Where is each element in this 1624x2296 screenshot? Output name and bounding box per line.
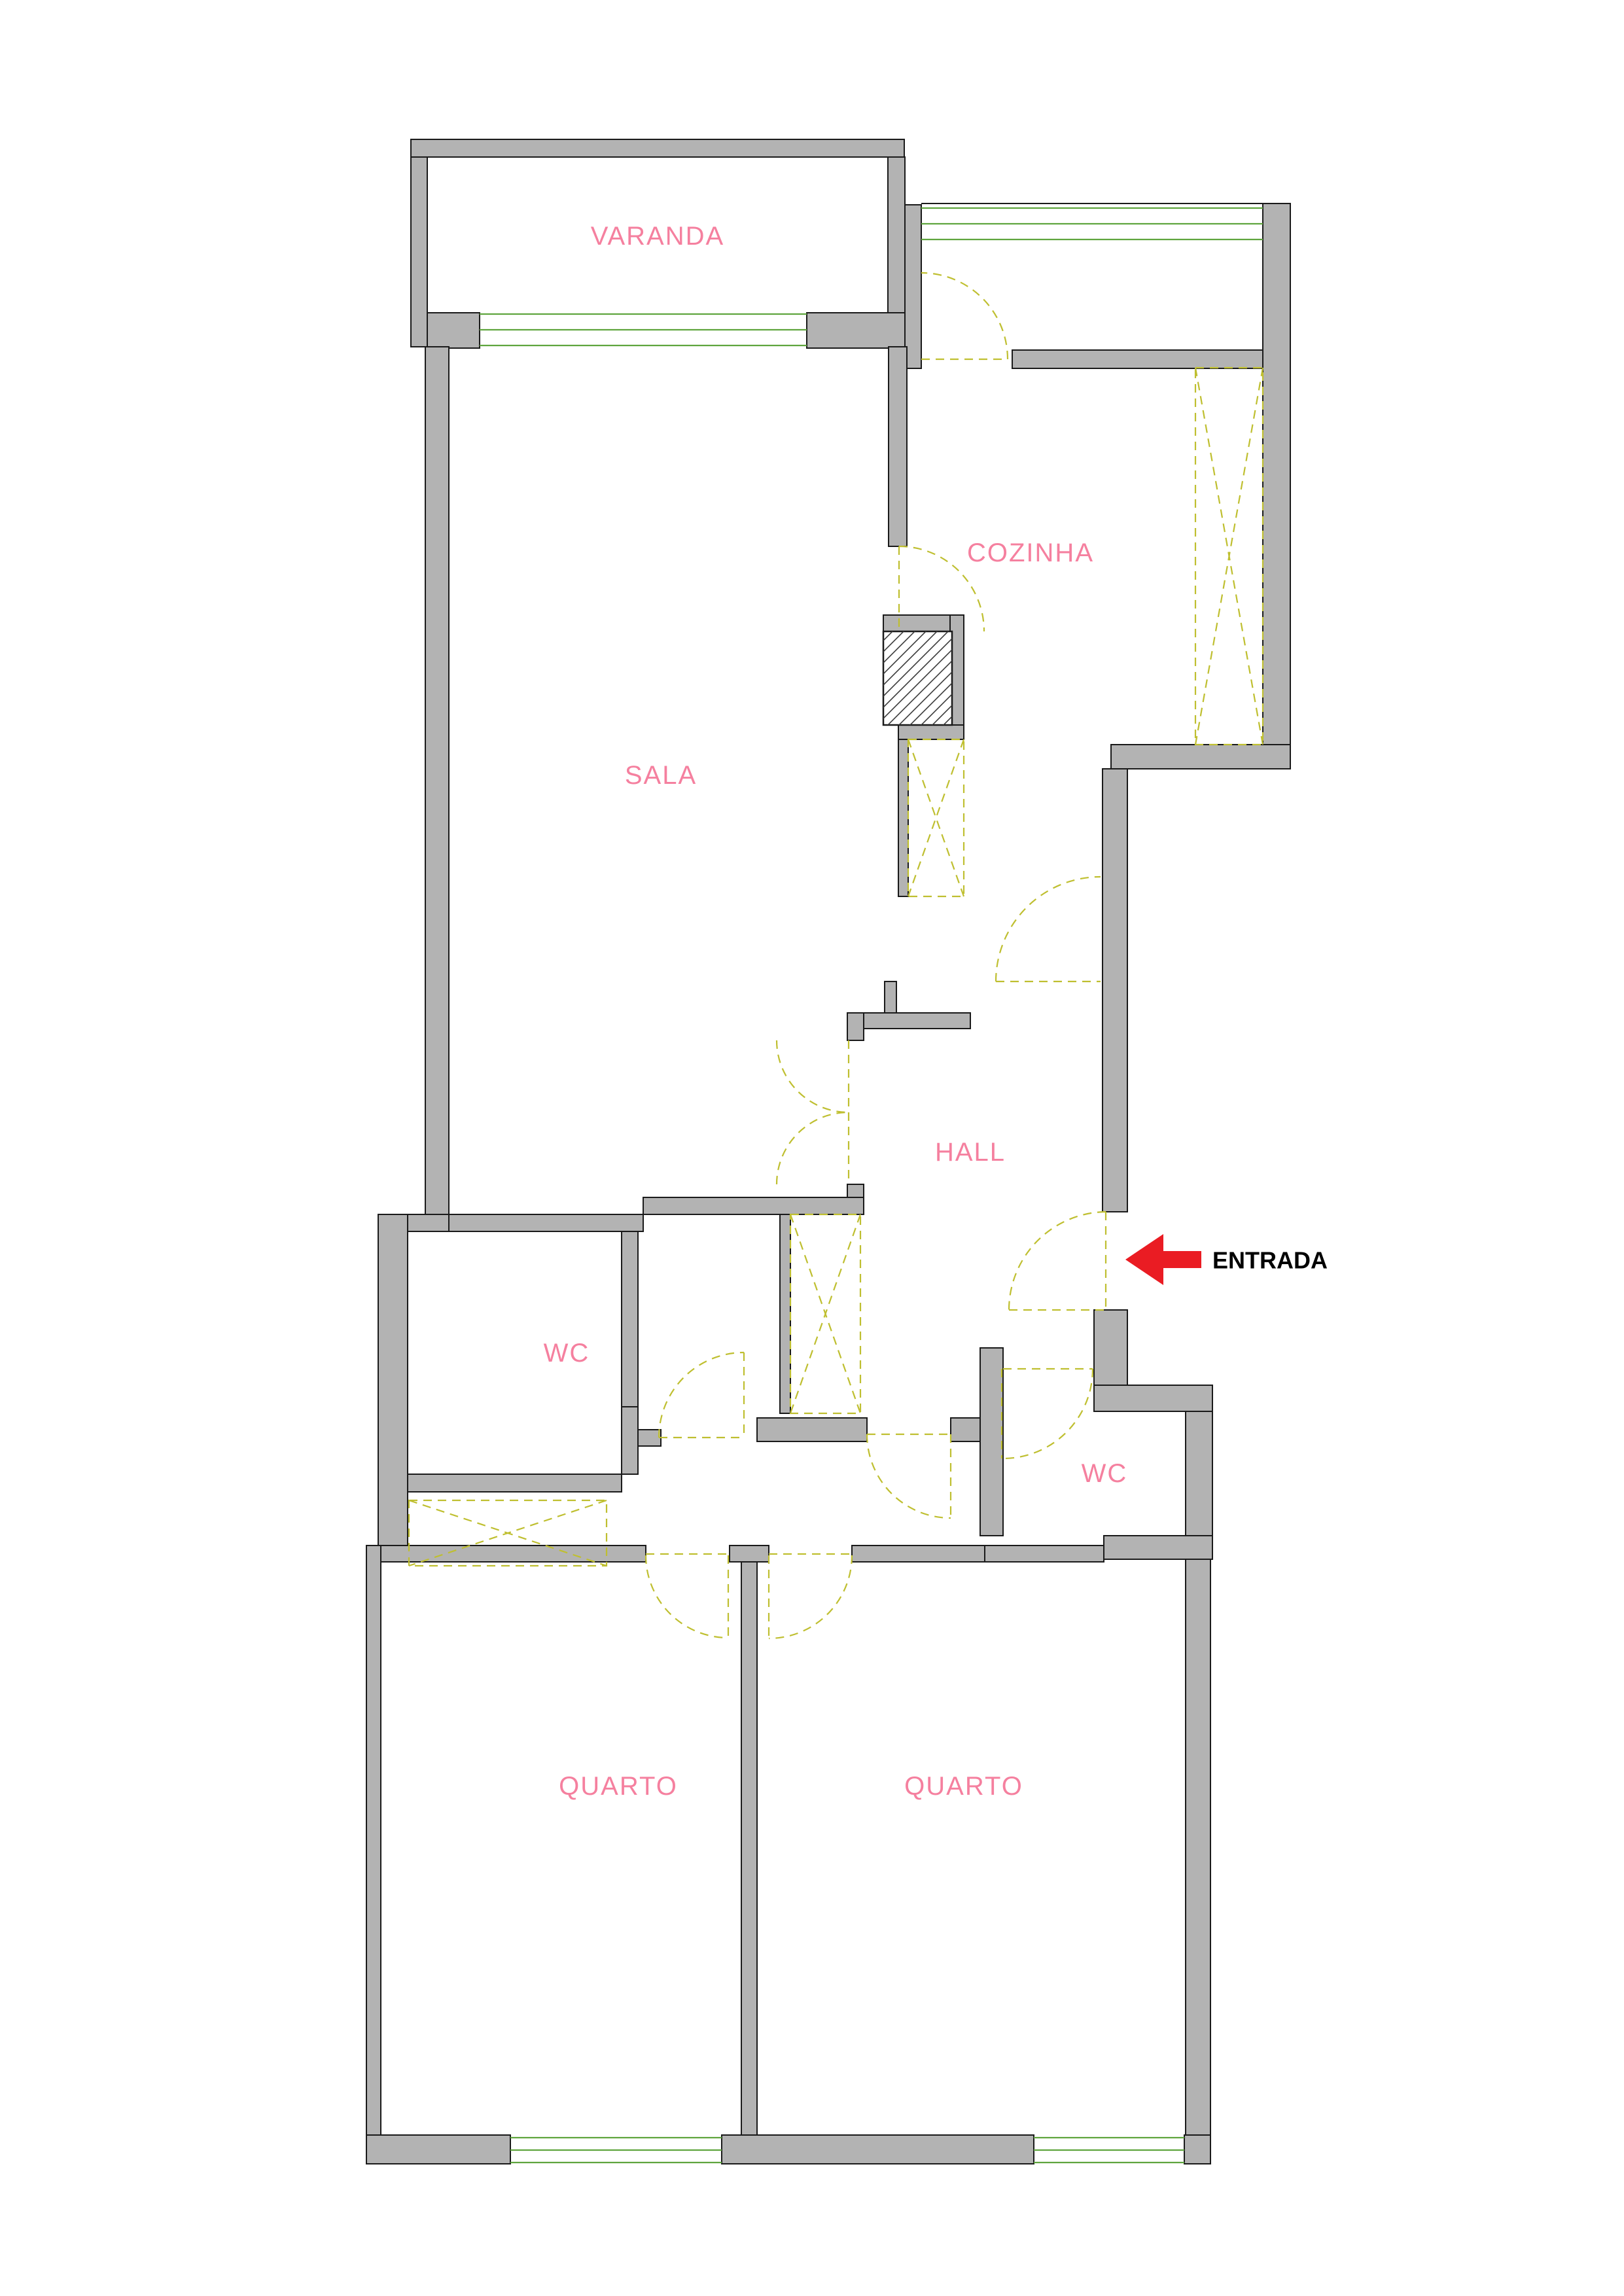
wall-segment — [1186, 1411, 1212, 1536]
room-label-sala: SALA — [625, 761, 697, 790]
wall-segment — [378, 1214, 408, 1562]
wall-segment — [807, 313, 905, 348]
wall-segment — [1103, 769, 1127, 1212]
wall-segment — [741, 1562, 757, 2138]
wall-segment — [1012, 350, 1263, 368]
wall-segment — [366, 2135, 510, 2164]
entrance-label: ENTRADA — [1212, 1247, 1328, 1274]
wall-segment — [622, 1231, 638, 1407]
wall-segment — [1104, 1536, 1212, 1559]
wall-segment — [730, 1545, 769, 1562]
wall-segment — [408, 1474, 622, 1492]
wall-segment — [722, 2135, 1034, 2164]
room-label-varanda: VARANDA — [591, 222, 724, 251]
wall-segment — [985, 1545, 1104, 1562]
wall-segment — [980, 1348, 1003, 1536]
room-label-wc-2: WC — [1082, 1459, 1128, 1488]
wall-segment — [780, 1214, 790, 1413]
floor-plan-svg: VARANDACOZINHASALAHALLWCWCQUARTOQUARTOEN… — [0, 0, 1624, 2296]
wall-segment — [1094, 1385, 1212, 1411]
floor-plan: VARANDACOZINHASALAHALLWCWCQUARTOQUARTOEN… — [0, 0, 1624, 2296]
wall-segment — [852, 1545, 985, 1562]
wall-segment — [757, 1418, 867, 1441]
wall-segment — [411, 157, 427, 347]
shaft-hatched — [883, 631, 952, 725]
room-label-wc-1: WC — [544, 1339, 590, 1368]
wall-segment — [1184, 2135, 1210, 2164]
wall-segment — [1094, 1310, 1127, 1385]
wall-segment — [898, 725, 964, 739]
room-label-quarto-1: QUARTO — [559, 1772, 678, 1801]
wall-segment — [889, 347, 907, 546]
wall-segment — [1111, 745, 1290, 769]
wall-segment — [638, 1430, 661, 1446]
wall-segment — [622, 1407, 638, 1474]
wall-segment — [898, 739, 908, 896]
wall-segment — [864, 1013, 970, 1029]
room-label-cozinha: COZINHA — [967, 539, 1094, 567]
wall-segment — [905, 205, 921, 368]
wall-segment — [366, 1545, 381, 2164]
wall-segment — [425, 347, 449, 1231]
wall-segment — [1263, 203, 1290, 769]
shaft-hatch-fill — [883, 631, 952, 725]
wall-segment — [847, 1013, 864, 1040]
wall-segment — [427, 313, 480, 348]
wall-segment — [1186, 1559, 1210, 2138]
wall-segment — [427, 1214, 643, 1231]
wall-segment — [411, 139, 904, 157]
wall-segment — [643, 1197, 864, 1214]
room-label-quarto-2: QUARTO — [904, 1772, 1023, 1801]
wall-segment — [883, 615, 950, 631]
room-label-hall: HALL — [935, 1138, 1006, 1167]
